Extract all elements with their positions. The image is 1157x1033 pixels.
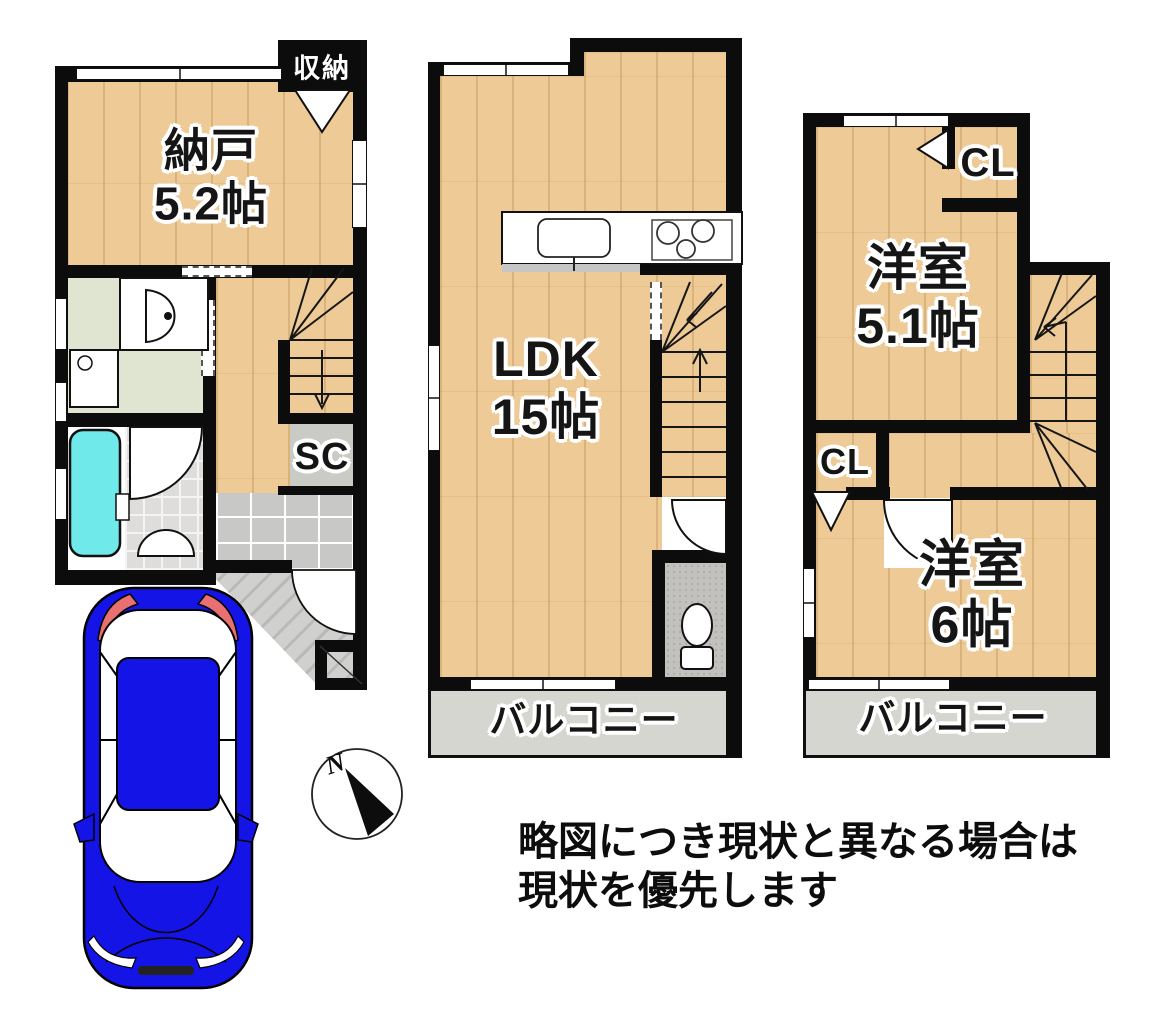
closet-label: 収納	[293, 47, 351, 86]
car-roof	[117, 658, 219, 810]
floor1-washroom	[67, 278, 207, 414]
wall	[803, 420, 1030, 433]
window	[55, 468, 67, 520]
room-name: 洋室	[856, 239, 980, 297]
floor2-ldk-upper	[584, 52, 742, 76]
wall	[67, 413, 203, 427]
wall	[650, 340, 662, 497]
balcony-label-floor2: バルコニー	[489, 700, 678, 743]
window	[843, 115, 949, 127]
wall	[570, 38, 742, 52]
sliding-door	[182, 266, 252, 277]
car-illustration	[74, 588, 258, 988]
wall	[640, 264, 742, 275]
floor1-entrance-tiles	[216, 493, 353, 570]
car-headlight	[88, 936, 136, 968]
room-size: 5.2帖	[154, 178, 268, 231]
wall	[55, 570, 216, 585]
car-mirror	[74, 814, 94, 842]
compass: N	[312, 747, 402, 839]
car-hood-line	[114, 886, 218, 933]
wall	[278, 340, 290, 424]
floor1-shower-floor	[125, 427, 205, 570]
wall	[652, 550, 742, 563]
car-headlight	[196, 936, 244, 968]
compass-circle	[312, 749, 402, 839]
closet-label-top: CL	[960, 140, 1015, 186]
window	[428, 345, 440, 451]
car-pillars	[100, 652, 236, 824]
compass-north-label: N	[321, 747, 350, 781]
wall	[942, 198, 1030, 212]
wall	[726, 38, 742, 758]
room-name: 納戸	[154, 125, 268, 178]
wall	[278, 486, 353, 495]
compass-needle	[345, 768, 394, 836]
car-taillight	[98, 594, 138, 644]
window	[352, 140, 367, 228]
floorplan-canvas: N 収納 納戸 5.2帖 SC LDK 15帖 バルコニー 洋室	[0, 0, 1157, 1033]
room-label-western1: 洋室 5.1帖	[856, 239, 980, 355]
floor1-porch-steps	[205, 573, 367, 690]
window	[443, 64, 569, 76]
room-label-western2: 洋室 6帖	[919, 536, 1025, 657]
wall	[846, 487, 890, 500]
disclaimer-line1: 略図につき現状と異なる場合は	[518, 818, 1078, 867]
room-name: LDK	[492, 330, 601, 388]
wall	[652, 550, 665, 677]
wall	[942, 127, 955, 169]
car-grille	[138, 966, 194, 975]
wall	[278, 413, 353, 424]
car-glasshouse	[100, 610, 236, 882]
room-label-ldk: LDK 15帖	[492, 330, 601, 446]
wall	[315, 678, 367, 690]
closet-label-side: CL	[820, 441, 870, 483]
window	[808, 679, 950, 690]
window	[470, 679, 616, 690]
car-hood-line	[106, 938, 226, 962]
shoe-closet-label: SC	[295, 435, 350, 479]
room-size: 15帖	[492, 388, 601, 446]
wall	[950, 487, 1096, 500]
floor2-door-area	[662, 497, 726, 553]
room-name: 洋室	[919, 536, 1025, 596]
stair-rail	[650, 282, 662, 340]
wall	[216, 560, 292, 573]
room-label-storage: 納戸 5.2帖	[154, 125, 268, 232]
room-size: 5.1帖	[856, 297, 980, 355]
disclaimer-note: 略図につき現状と異なる場合は 現状を優先します	[518, 818, 1078, 916]
car-taillight	[198, 594, 238, 644]
balcony-label-floor3: バルコニー	[858, 698, 1047, 741]
car-mirror	[238, 814, 258, 842]
disclaimer-line2: 現状を優先します	[518, 867, 1078, 916]
window	[55, 298, 67, 350]
sliding-door	[201, 300, 215, 376]
floor2-toilet-room	[665, 563, 726, 677]
room-size: 6帖	[919, 596, 1025, 656]
window	[76, 68, 282, 80]
window	[55, 382, 67, 422]
window	[803, 568, 815, 638]
car-body	[84, 588, 252, 988]
